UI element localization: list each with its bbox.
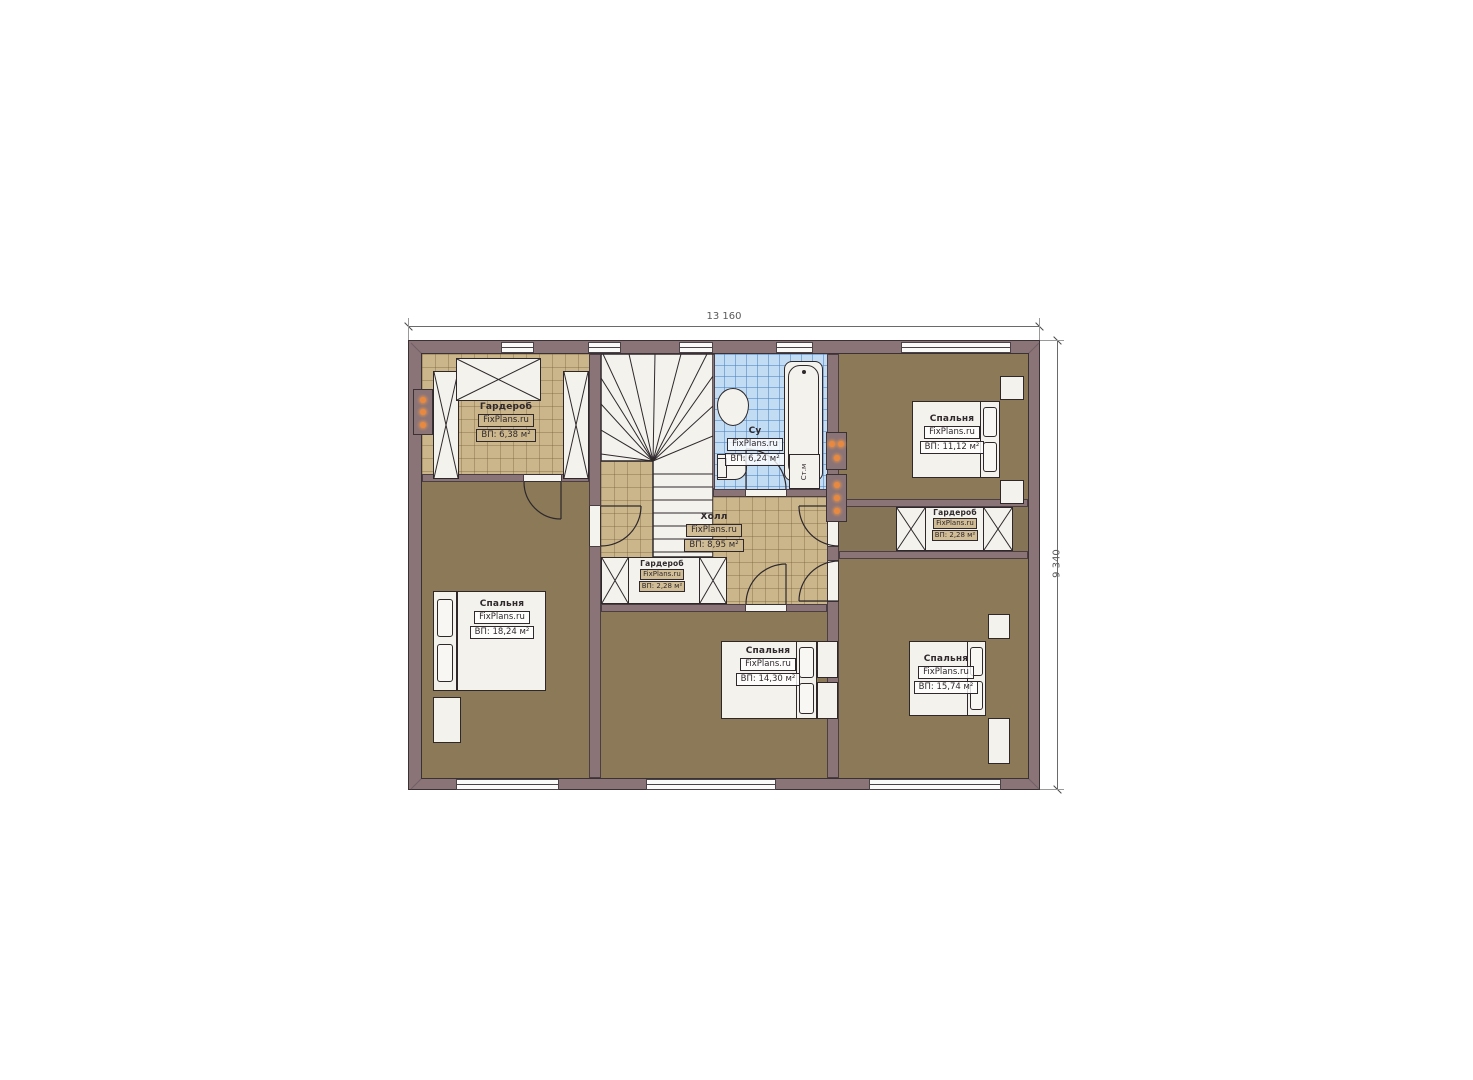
room-name: Спальня [480, 599, 525, 609]
watermark: FixPlans.ru [474, 611, 530, 624]
room-area: ВП: 18,24 м² [470, 626, 535, 639]
door-opening [827, 561, 839, 601]
interior: Ст.м [422, 354, 1028, 778]
radiator-panel [826, 474, 847, 522]
watermark: FixPlans.ru [924, 426, 980, 439]
wall [589, 354, 601, 506]
room-area: ВП: 6,38 м² [476, 429, 535, 442]
watermark: FixPlans.ru [918, 666, 974, 679]
building-outline: Ст.м [408, 340, 1040, 790]
room-name: Су [749, 426, 762, 436]
nightstand [817, 682, 838, 719]
room-label-wardrobe-middle: Гардероб FixPlans.ru ВП: 2,28 м² [627, 560, 697, 592]
floor-plan-canvas: 13 160 9 340 [0, 0, 1473, 1080]
nightstand [988, 718, 1010, 764]
room-label-wardrobe-right: Гардероб FixPlans.ru ВП: 2,28 м² [922, 509, 988, 541]
wall [786, 489, 827, 497]
wall [839, 551, 1028, 559]
window [646, 779, 776, 790]
watermark: FixPlans.ru [740, 658, 796, 671]
dim-line-top [408, 326, 1040, 327]
dim-extension [1040, 340, 1064, 341]
wall [707, 354, 715, 489]
watermark: FixPlans.ru [478, 414, 534, 427]
room-name: Гардероб [640, 560, 684, 568]
door-opening [589, 506, 601, 546]
washing-machine: Ст.м [789, 454, 820, 489]
nightstand [1000, 376, 1024, 400]
room-area: ВП: 6,24 м² [725, 453, 784, 466]
room-label-wardrobe-top-left: Гардероб FixPlans.ru ВП: 6,38 м² [456, 402, 556, 442]
nightstand [1000, 480, 1024, 504]
dim-width-label: 13 160 [408, 311, 1040, 322]
wall [786, 604, 827, 612]
watermark: FixPlans.ru [933, 518, 977, 529]
door-opening [746, 604, 786, 612]
window [776, 342, 813, 353]
room-name: Спальня [930, 414, 975, 424]
room-label-bathroom: Су FixPlans.ru ВП: 6,24 м² [717, 426, 793, 466]
room-label-hall: Холл FixPlans.ru ВП: 8,95 м² [664, 512, 764, 552]
room-name: Спальня [746, 646, 791, 656]
room-area: ВП: 2,28 м² [932, 530, 979, 541]
indicator-dot [834, 495, 840, 501]
indicator-dot [834, 508, 840, 514]
wall [601, 604, 746, 612]
room-label-bedroom-bottom-right: Спальня FixPlans.ru ВП: 15,74 м² [900, 654, 992, 694]
room-label-bedroom-bottom-middle: Спальня FixPlans.ru ВП: 14,30 м² [722, 646, 814, 686]
dim-height-label: 9 340 [1052, 547, 1063, 581]
nightstand [988, 614, 1010, 639]
watermark: FixPlans.ru [640, 569, 684, 580]
indicator-dot [838, 441, 844, 447]
indicator-dot [420, 422, 426, 428]
room-label-bedroom-bottom-left: Спальня FixPlans.ru ВП: 18,24 м² [452, 599, 552, 639]
indicator-dot [829, 441, 835, 447]
room-area: ВП: 14,30 м² [736, 673, 801, 686]
window [501, 342, 534, 353]
room-area: ВП: 2,28 м² [639, 581, 686, 592]
window [456, 779, 559, 790]
door-opening [746, 489, 786, 497]
nightstand [817, 641, 838, 678]
room-area: ВП: 15,74 м² [914, 681, 979, 694]
window [679, 342, 713, 353]
room-label-bedroom-top-right: Спальня FixPlans.ru ВП: 11,12 м² [904, 414, 1000, 454]
room-area: ВП: 8,95 м² [684, 539, 743, 552]
washing-machine-label: Ст.м [800, 463, 808, 479]
indicator-dot [420, 397, 426, 403]
room-name: Гардероб [933, 509, 977, 517]
indicator-dot [420, 409, 426, 415]
window [901, 342, 1011, 353]
room-area: ВП: 11,12 м² [920, 441, 985, 454]
nightstand [433, 697, 461, 743]
window [869, 779, 1001, 790]
closet [601, 557, 629, 604]
closet [563, 371, 589, 479]
door-opening [524, 474, 561, 482]
indicator-dot [834, 482, 840, 488]
closet [456, 358, 541, 401]
wall [713, 489, 746, 497]
dim-extension [1040, 789, 1064, 790]
window [588, 342, 621, 353]
watermark: FixPlans.ru [686, 524, 742, 537]
indicator-dot [834, 455, 840, 461]
watermark: FixPlans.ru [727, 438, 783, 451]
closet [699, 557, 727, 604]
radiator-panel [413, 389, 433, 435]
room-name: Спальня [924, 654, 969, 664]
wall [827, 546, 839, 561]
wall [589, 546, 601, 778]
radiator-panel [826, 432, 847, 470]
room-name: Гардероб [480, 402, 532, 412]
room-name: Холл [700, 512, 727, 522]
